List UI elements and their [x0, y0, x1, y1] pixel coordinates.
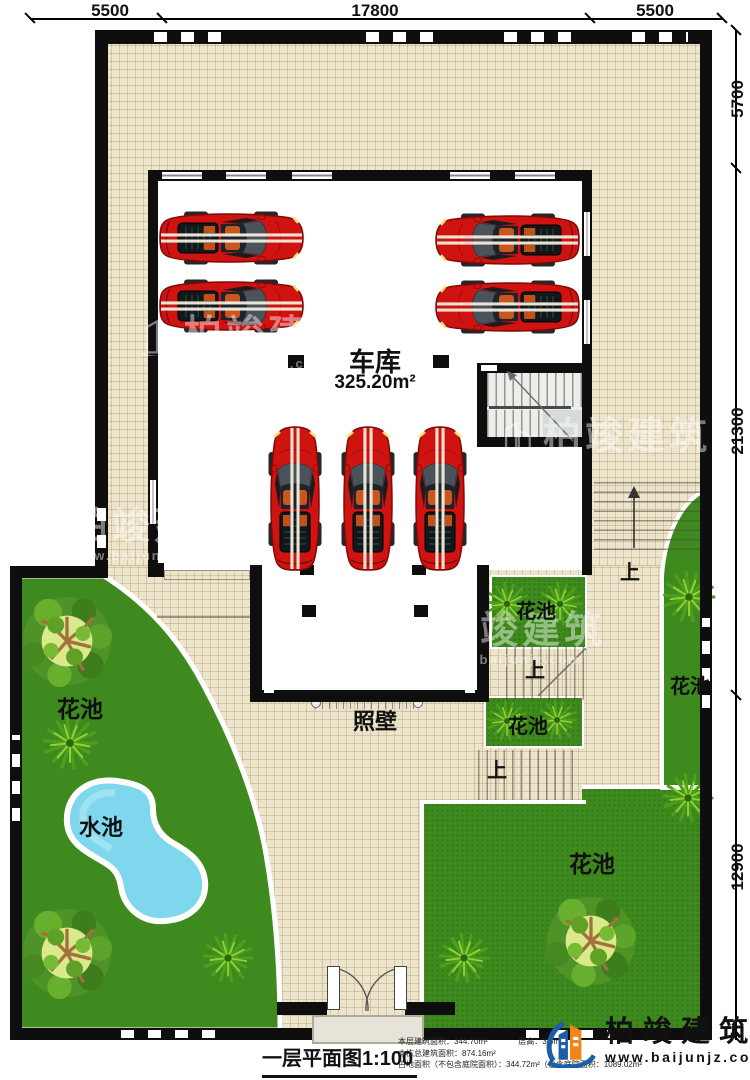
watermark-logo-icon	[24, 508, 64, 548]
gate-wall-stub-left	[277, 1002, 327, 1015]
garage-ext-wall-left	[250, 565, 262, 702]
garage-ext-wall-right	[477, 565, 489, 702]
site-wall-right	[700, 30, 712, 1040]
water-pool-label: 水池	[70, 810, 132, 842]
car-icon	[338, 424, 398, 572]
dim-top-left: 5500	[55, 1, 165, 21]
flower-bed-label: 花池	[655, 670, 725, 699]
car-icon	[433, 277, 581, 337]
stairs-up-arrow	[622, 484, 646, 552]
brand-url: www.baijunjz.com	[605, 1049, 750, 1065]
screen-wall-label: 照壁	[335, 704, 415, 736]
flower-bed-label: 花池	[501, 595, 571, 624]
site-wall-connector	[10, 566, 108, 578]
brand-logo-icon	[543, 1014, 597, 1068]
dim-right-1: 5700	[728, 69, 748, 129]
gate-leaf-left	[327, 966, 340, 1010]
up-label: 上	[610, 556, 650, 585]
car-icon	[433, 210, 581, 270]
flower-bed-label: 花池	[45, 690, 115, 724]
car-icon	[158, 208, 306, 268]
floor-plan: 5500 17800 5500 5700 21300 12900	[0, 0, 750, 1080]
column	[414, 605, 428, 617]
flower-bed-label: 花池	[493, 710, 563, 739]
brand-name: 柏竣建筑	[605, 1017, 750, 1049]
up-label: 上	[515, 654, 555, 683]
dim-right-3: 12900	[728, 837, 748, 897]
car-icon	[265, 424, 325, 572]
page-title: 一层平面图1:100	[262, 1042, 417, 1078]
column	[433, 355, 449, 368]
column	[288, 355, 304, 368]
exterior-stairs-east	[594, 482, 702, 554]
tree-icon	[544, 894, 638, 988]
title-block: 一层平面图1:100	[262, 1042, 417, 1078]
garage-area: 325.20m²	[320, 372, 430, 394]
car-icon	[410, 424, 470, 572]
dim-top-mid: 17800	[300, 1, 450, 21]
gate-leaf-right	[394, 966, 407, 1010]
garage-door-threshold	[164, 570, 250, 580]
gate-wall-stub-right	[405, 1002, 455, 1015]
tree-icon	[20, 906, 114, 1000]
fern-icon	[438, 932, 490, 984]
garage-ext-wall-bottom	[250, 690, 489, 702]
dim-right-2: 21300	[728, 401, 748, 461]
flower-bed-label: 花池	[557, 845, 627, 879]
up-label: 上	[477, 754, 517, 783]
stat-floor-area: 本层建筑面积：344.70m²	[398, 1037, 488, 1046]
column	[302, 605, 316, 617]
garage-interior-lower	[256, 565, 482, 692]
brand-block: 柏竣建筑 www.baijunjz.com	[543, 1014, 750, 1068]
tree-icon	[20, 594, 114, 688]
fern-icon	[202, 932, 254, 984]
garage-corner-stub	[148, 563, 164, 577]
site-wall-left-upper	[95, 30, 108, 566]
dim-top-right: 5500	[595, 1, 715, 21]
car-icon	[158, 276, 306, 336]
